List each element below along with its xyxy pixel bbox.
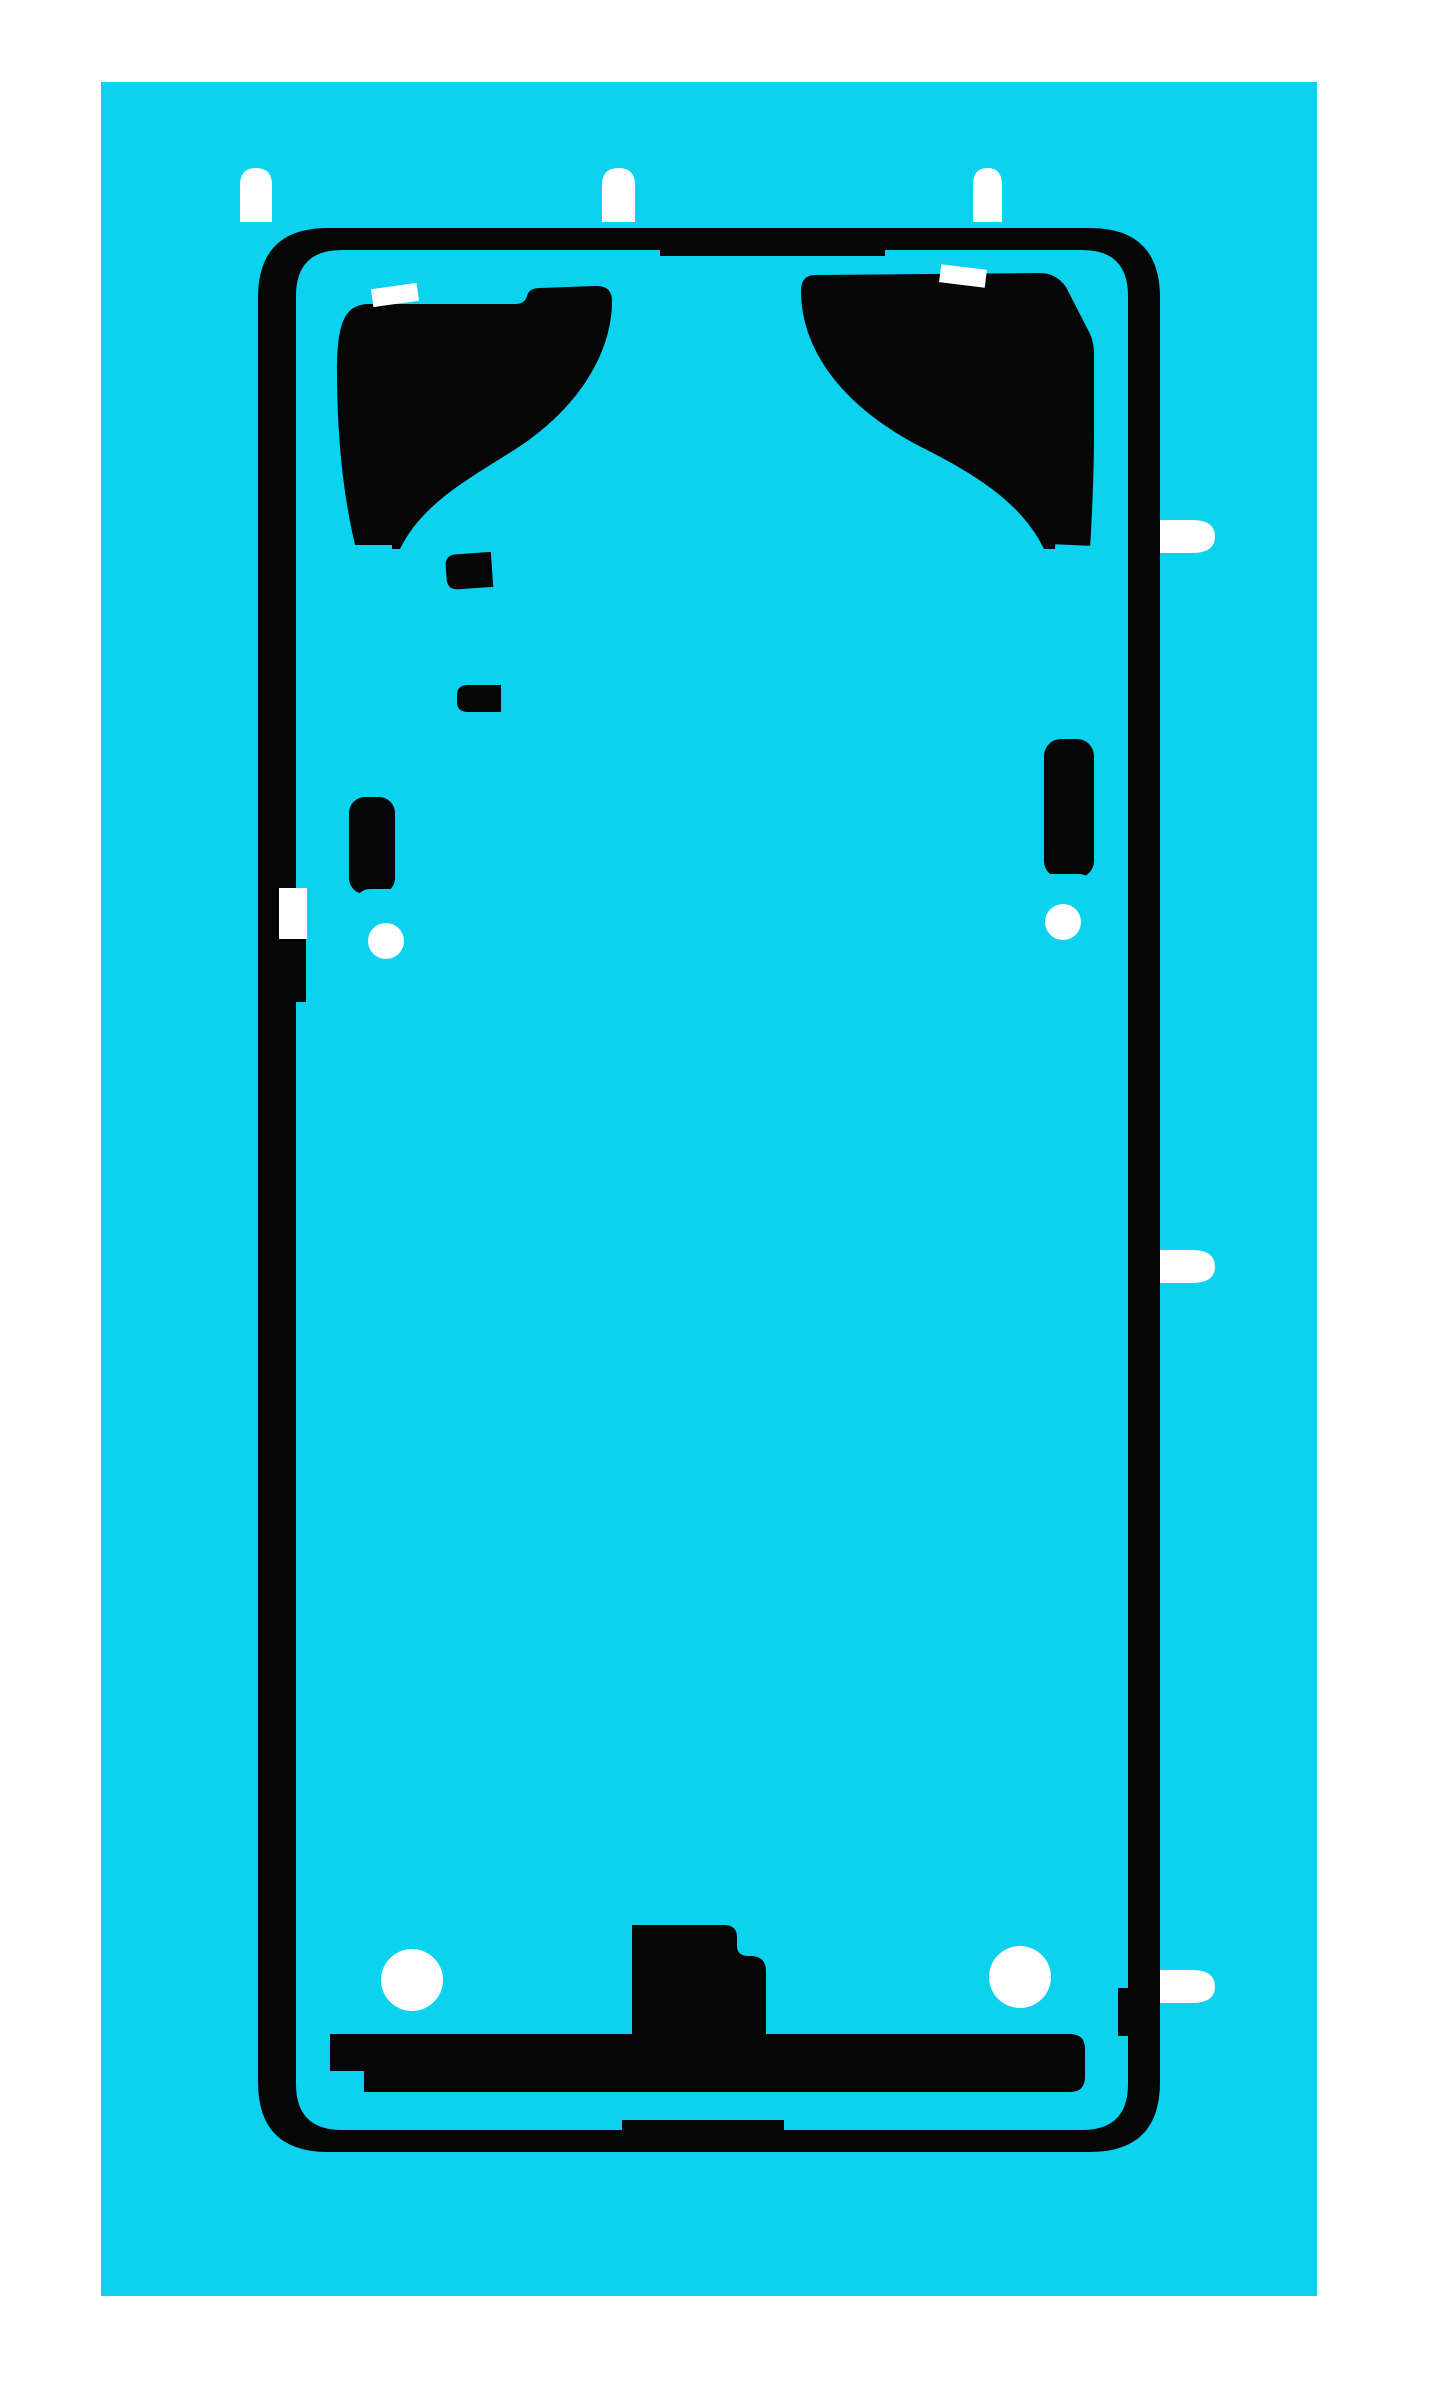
adhesive-sheet-illustration (0, 0, 1445, 2392)
pull-strip-1 (445, 549, 539, 590)
top-alignment-tab-2 (602, 168, 635, 222)
left-edge-inner-step (296, 938, 306, 1002)
adhesive-sheet-photo (0, 0, 1445, 2392)
pull-strip-1-tip (445, 552, 493, 590)
right-alignment-tab-1 (1156, 520, 1215, 553)
pull-strip-2 (457, 685, 548, 712)
pull-strip-2-tip (457, 685, 501, 712)
top-alignment-tab-1 (240, 168, 272, 222)
side-strip-left-adhesive-segment (349, 797, 395, 894)
bottom-screw-hole-right (989, 1946, 1051, 2008)
top-alignment-tab-3 (973, 168, 1002, 222)
side-strip-right-adhesive-segment (1044, 739, 1094, 878)
top-edge-step (660, 248, 885, 256)
right-alignment-tab-3 (1156, 1970, 1215, 2003)
bottom-edge-bump (622, 2120, 784, 2132)
right-alignment-tab-2 (1156, 1250, 1215, 1283)
screw-hole-left (368, 923, 404, 959)
bottom-screw-hole-left (381, 1949, 443, 2011)
left-edge-notch-cutout (279, 888, 307, 939)
right-edge-inner-step (1118, 1988, 1128, 2036)
bottom-adhesive-bar (330, 2034, 1085, 2092)
screw-hole-right (1045, 904, 1081, 940)
